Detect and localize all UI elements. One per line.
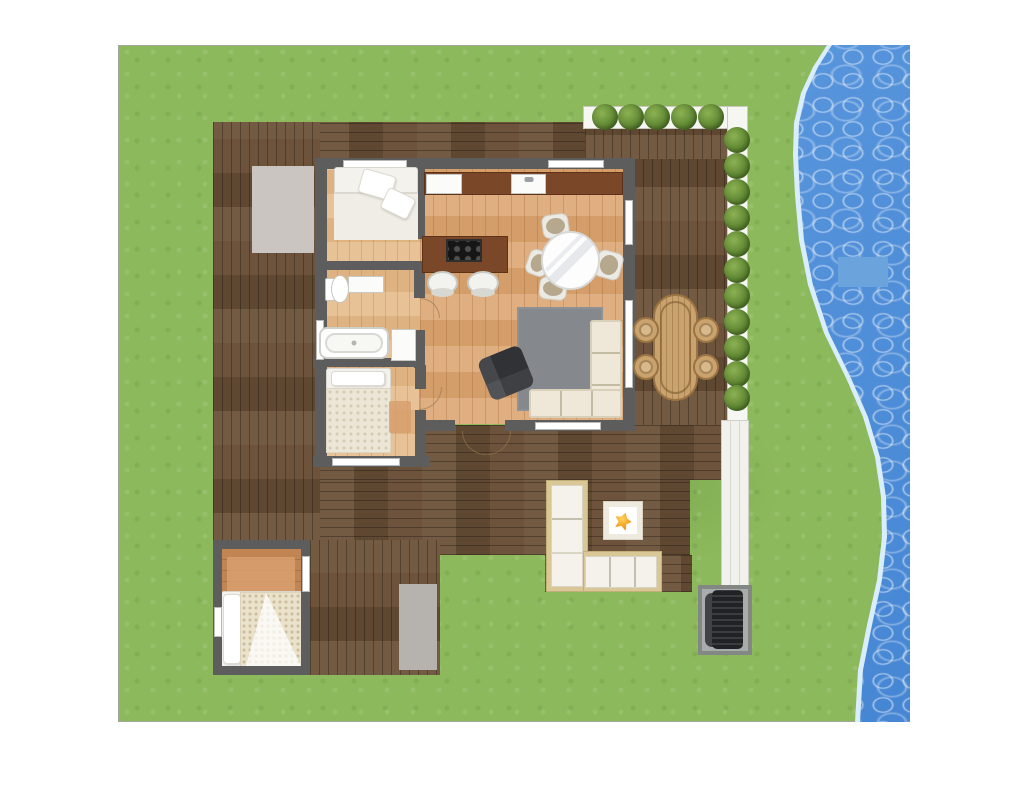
grill-body [712,590,743,649]
wicker-chair-3 [693,317,719,343]
bush-top-2 [618,104,644,130]
cooktop [446,239,482,262]
bush-right-8 [724,309,750,335]
wicker-table [653,294,698,401]
bush-right-7 [724,283,750,309]
wall-right [623,158,635,431]
bush-right-10 [724,361,750,387]
cabin-bed-blanket [240,592,302,667]
wicker-chair-4 [693,354,719,380]
window-right-upper [625,200,633,245]
entry-mat [252,166,314,253]
bush-top-3 [644,104,670,130]
bush-top-5 [698,104,724,130]
bath-cabinet [391,329,416,361]
window-kitchen-top [548,160,604,168]
bush-right-3 [724,179,750,205]
walkway [721,420,749,590]
cabin-window-right [302,556,310,592]
wall-bedroom2-right-upper [415,365,426,389]
bush-right-9 [724,335,750,361]
bath-vanity [348,276,384,293]
dining-table [541,231,600,290]
window-right-lower [625,300,633,388]
bush-right-2 [724,153,750,179]
floor-plan-canvas [0,0,1024,800]
cabin-window-left [214,607,222,637]
bed2-duvet [326,388,391,453]
bush-right-11 [724,385,750,411]
bed2-rug [389,401,411,433]
toilet [325,273,349,303]
bathtub [319,327,389,359]
kitchen-sink [511,174,546,194]
cabin-wall-bottom [213,666,310,675]
bush-right-4 [724,205,750,231]
bed2-pillow [331,371,385,386]
cabin-wall-top [213,540,310,549]
bush-right-1 [724,127,750,153]
wall-bedroom1-bath [325,261,415,270]
outdoor-sofa-cushions-vertical [551,485,583,553]
wicker-chair-2 [633,354,659,380]
wicker-chair-1 [633,317,659,343]
outdoor-sofa-cushion-corner [551,553,583,587]
window-bedroom2-bottom [332,458,400,466]
bush-top-1 [592,104,618,130]
bush-right-5 [724,231,750,257]
outdoor-sofa-cushions-horizontal [585,556,657,588]
bar-stool-2 [467,271,499,295]
window-living-bottom [535,422,601,430]
sofa-horizontal [529,389,622,418]
bar-stool-1 [427,271,458,295]
bush-right-6 [724,257,750,283]
bush-top-4 [671,104,697,130]
fridge [426,174,462,194]
fire-pit [604,502,642,539]
wall-bedroom2-right-lower [415,410,426,462]
cabin-bed-pillow [223,594,241,664]
water-float-patch [838,257,888,287]
deck-mat [399,584,437,670]
